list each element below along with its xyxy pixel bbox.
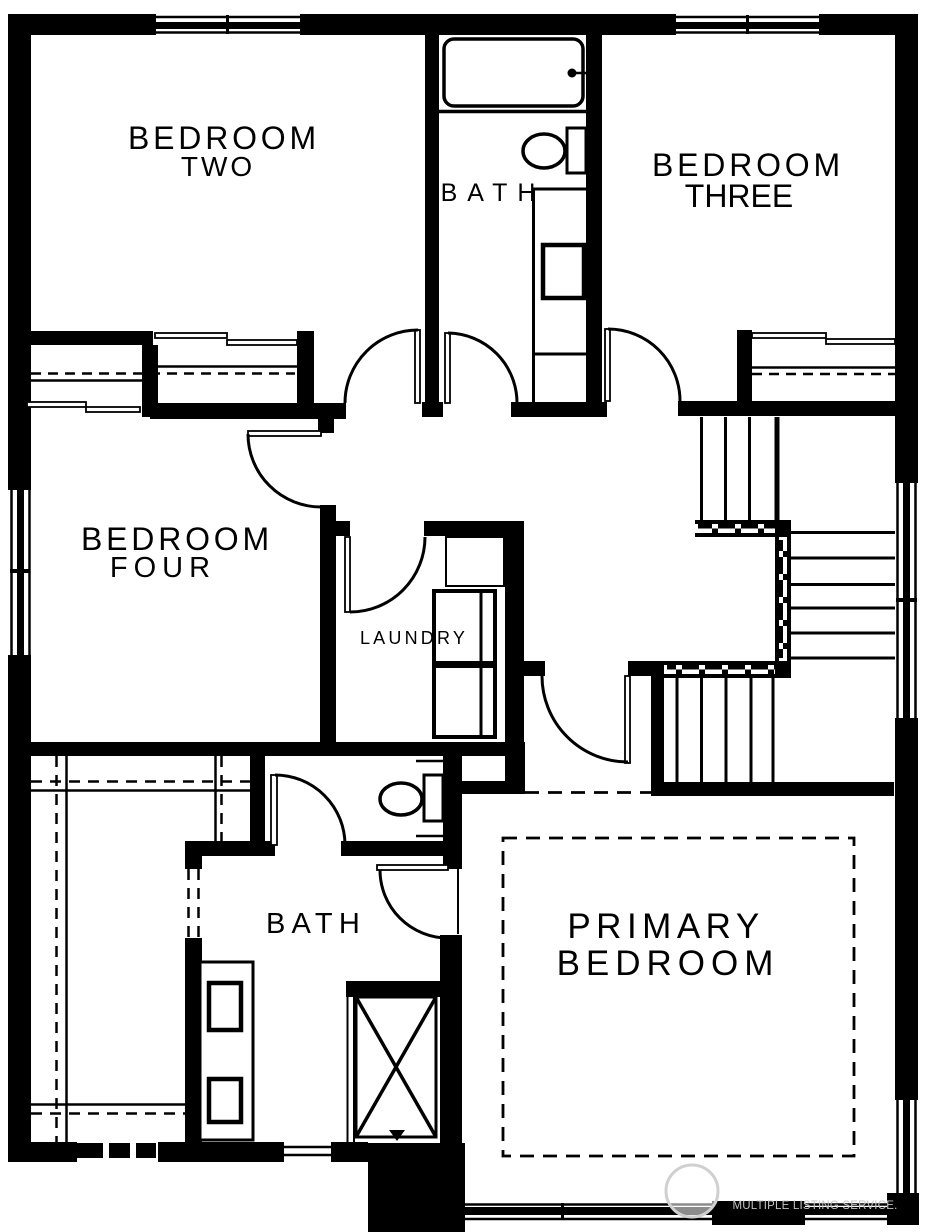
svg-text:BEDROOM: BEDROOM — [557, 944, 780, 983]
svg-text:FOUR: FOUR — [110, 552, 216, 584]
svg-text:LAUNDRY: LAUNDRY — [360, 628, 468, 648]
svg-text:TWO: TWO — [181, 151, 255, 182]
svg-text:THREE: THREE — [685, 178, 793, 214]
svg-text:BATH: BATH — [441, 179, 546, 207]
svg-text:MULTIPLE LISTING SERVICE.: MULTIPLE LISTING SERVICE. — [733, 1200, 898, 1212]
svg-text:PRIMARY: PRIMARY — [567, 907, 764, 946]
svg-text:BATH: BATH — [266, 908, 366, 940]
